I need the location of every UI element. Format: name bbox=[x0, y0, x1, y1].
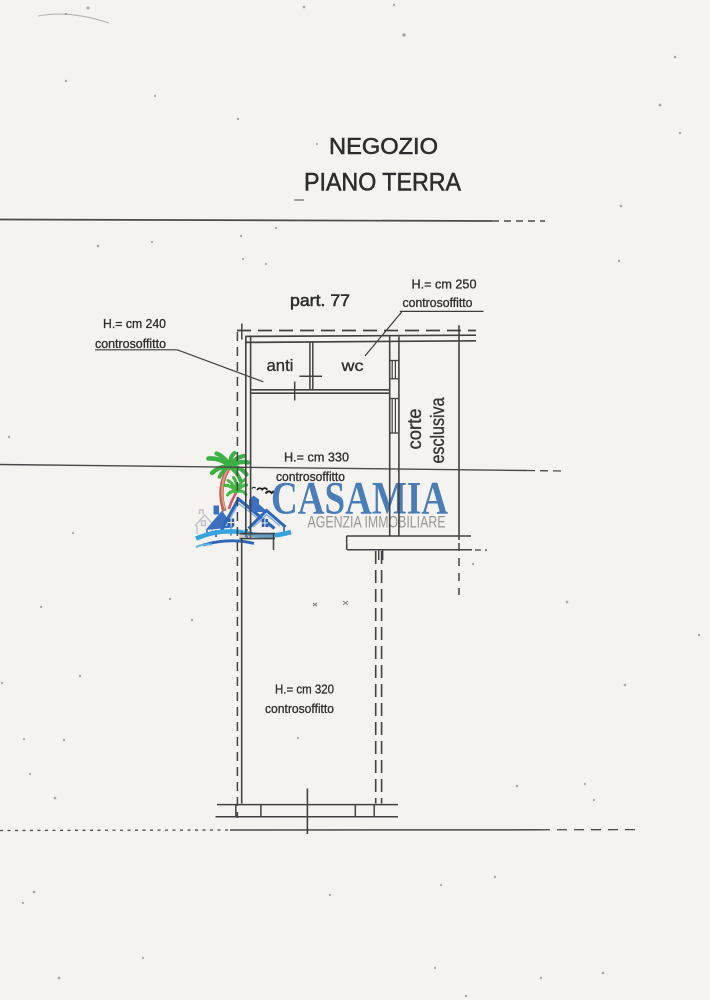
svg-text:H.= cm 330: H.= cm 330 bbox=[284, 451, 349, 465]
svg-text:esclusiva: esclusiva bbox=[428, 397, 449, 463]
svg-text:H.= cm 320: H.= cm 320 bbox=[275, 682, 334, 697]
svg-text:corte: corte bbox=[405, 409, 426, 450]
svg-text:PIANO TERRA: PIANO TERRA bbox=[304, 169, 461, 197]
svg-text:wc: wc bbox=[340, 358, 363, 375]
svg-text:AGENZIA IMMOBILIARE: AGENZIA IMMOBILIARE bbox=[308, 514, 446, 532]
svg-text:controsoffitto: controsoffitto bbox=[265, 701, 334, 716]
svg-text:H.= cm 240: H.= cm 240 bbox=[103, 317, 166, 331]
svg-text:controsoffitto: controsoffitto bbox=[95, 337, 166, 351]
svg-text:controsoffitto: controsoffitto bbox=[403, 296, 473, 310]
svg-text:anti: anti bbox=[267, 357, 294, 375]
svg-text:part. 77: part. 77 bbox=[290, 291, 350, 310]
svg-text:NEGOZIO: NEGOZIO bbox=[329, 133, 438, 159]
svg-text:controsoffitto: controsoffitto bbox=[276, 470, 345, 484]
svg-text:H.= cm 250: H.= cm 250 bbox=[412, 278, 477, 292]
